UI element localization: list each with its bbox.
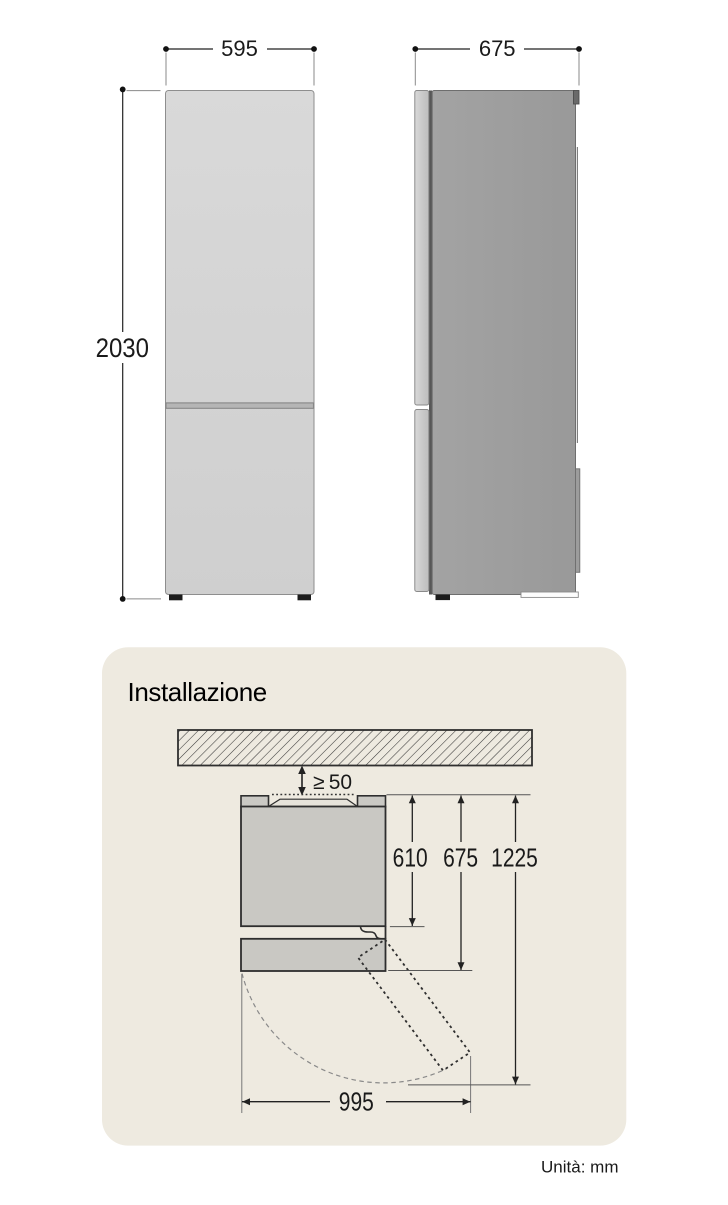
svg-text:610: 610 [393,843,428,873]
svg-text:1225: 1225 [491,843,538,873]
svg-text:≥ 50: ≥ 50 [313,771,352,794]
svg-text:995: 995 [339,1087,374,1117]
svg-text:675: 675 [443,843,478,873]
svg-text:675: 675 [479,36,516,61]
svg-text:Installazione: Installazione [128,677,267,707]
svg-text:Unità: mm: Unità: mm [541,1157,618,1176]
svg-text:2030: 2030 [96,334,149,364]
svg-text:595: 595 [221,36,258,61]
